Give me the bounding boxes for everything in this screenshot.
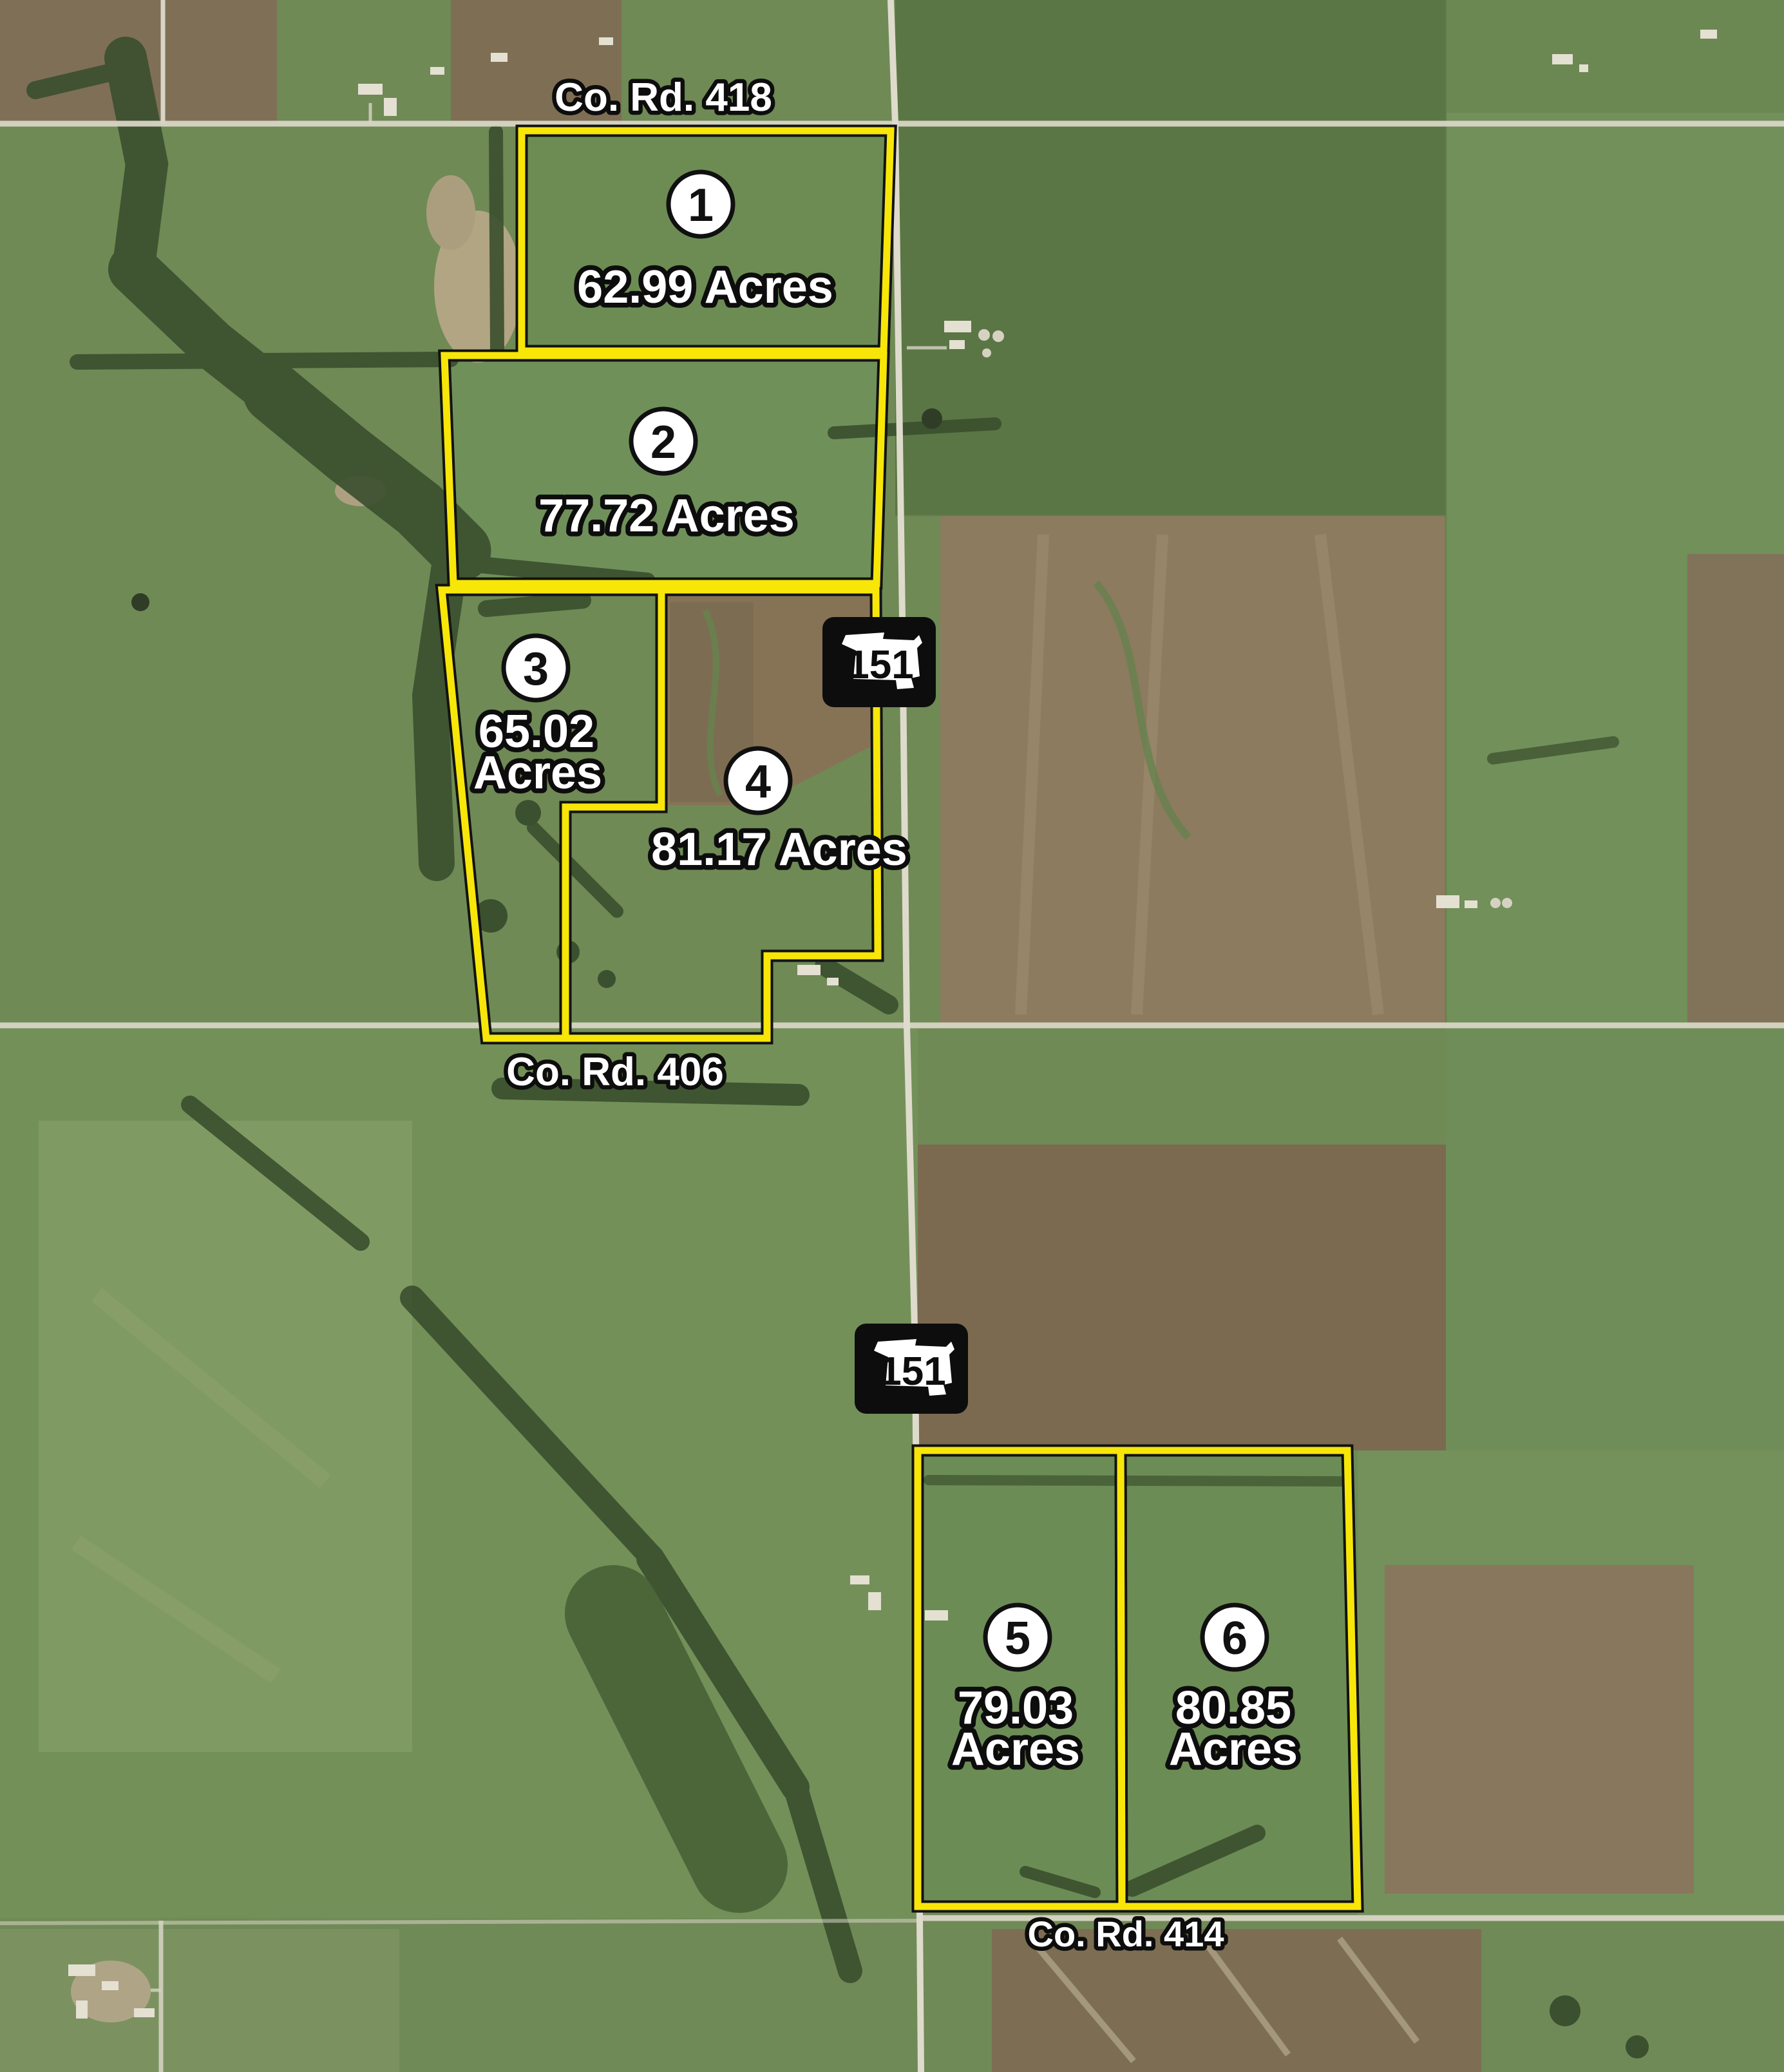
route-number: 151 — [879, 1349, 945, 1394]
road-label-406: Co. Rd. 406 — [506, 1050, 724, 1094]
tract-6-number: 6 — [1222, 1613, 1248, 1664]
tract-1-number: 1 — [688, 180, 714, 231]
aerial-plat-map[interactable]: 151 151 Co. Rd. 418 Co. Rd. 406 Co. Rd. … — [0, 0, 1784, 2072]
tract-6-acres-label-line2: Acres — [1169, 1724, 1298, 1775]
pond — [922, 408, 942, 429]
tract-5-boundary[interactable] — [918, 1450, 1122, 1906]
tract-2-number: 2 — [650, 417, 676, 468]
missouri-151-shield-south: 151 — [855, 1324, 968, 1414]
satellite-imagery — [0, 0, 1784, 2072]
tract-3-acres-label-line2: Acres — [473, 747, 602, 799]
tract-2-acres-label: 77.72 Acres — [538, 490, 795, 542]
road-label-418: Co. Rd. 418 — [555, 75, 772, 120]
tract-4-marker[interactable]: 4 — [726, 748, 790, 813]
pond — [131, 593, 149, 611]
tract-5-number: 5 — [1005, 1613, 1030, 1664]
road-label-414: Co. Rd. 414 — [1028, 1914, 1224, 1954]
tract-1-acres-label: 62.99 Acres — [577, 261, 833, 313]
tract-2-marker[interactable]: 2 — [631, 409, 696, 473]
tract-5-marker[interactable]: 5 — [985, 1605, 1050, 1669]
tract-3-number: 3 — [523, 643, 549, 695]
tract-3-marker[interactable]: 3 — [504, 636, 568, 700]
tract-4-acres-label: 81.17 Acres — [651, 824, 907, 875]
route-number: 151 — [847, 643, 913, 687]
tract-1-boundary[interactable] — [522, 131, 891, 351]
missouri-151-shield-north: 151 — [822, 617, 936, 707]
tract-4-number: 4 — [745, 756, 771, 808]
tract-6-marker[interactable]: 6 — [1202, 1605, 1267, 1669]
tract-1-marker[interactable]: 1 — [669, 172, 733, 236]
tract-5-acres-label-line2: Acres — [951, 1724, 1080, 1775]
tract-6-boundary[interactable] — [1121, 1450, 1358, 1906]
